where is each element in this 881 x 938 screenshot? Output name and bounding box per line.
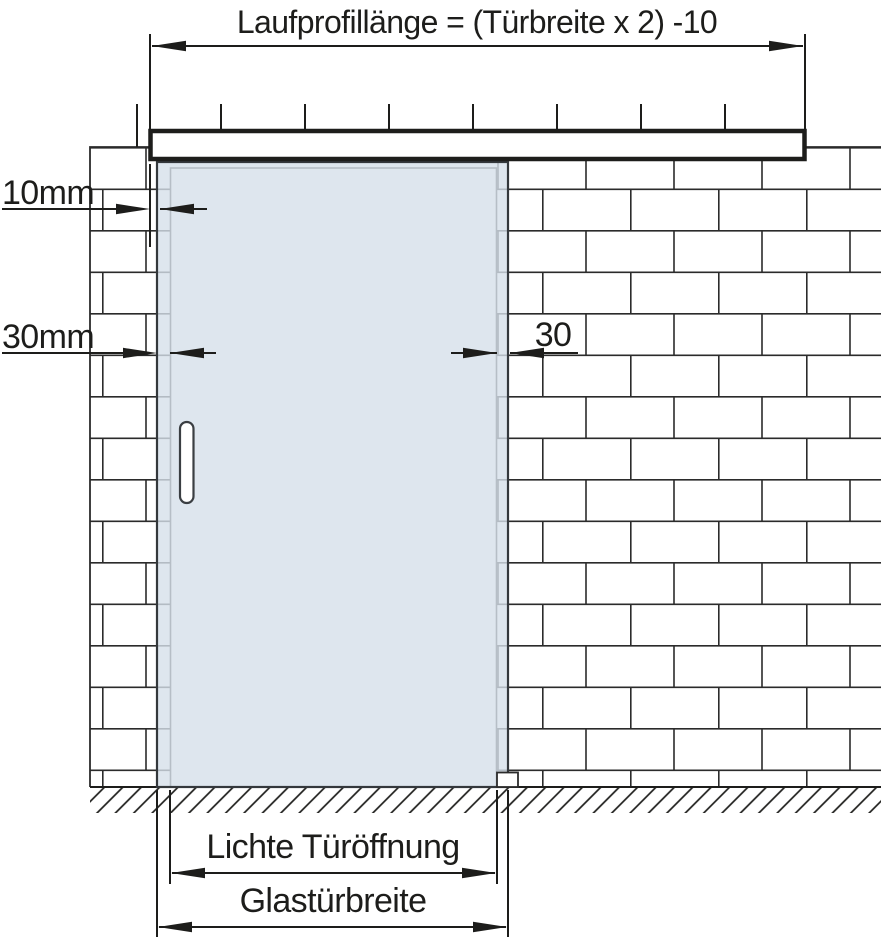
floor-hatch bbox=[90, 787, 881, 813]
overlap-30mm-label: 30mm bbox=[2, 318, 94, 356]
glass-door bbox=[157, 162, 508, 787]
track-profile bbox=[151, 131, 805, 159]
overlap-30-label: 30 bbox=[535, 316, 572, 354]
arrow-right-icon bbox=[473, 922, 507, 932]
arrow-left-icon bbox=[158, 922, 192, 932]
track-length-label: Laufprofillänge = (Türbreite x 2) -10 bbox=[237, 4, 717, 40]
wall-right bbox=[497, 147, 881, 787]
floor-guide-block bbox=[497, 773, 518, 788]
floor bbox=[90, 787, 881, 813]
dim-track-length: Laufprofillänge = (Türbreite x 2) -10 bbox=[150, 4, 805, 130]
arrow-right-icon bbox=[769, 41, 803, 51]
glass-width-label: Glastürbreite bbox=[240, 882, 427, 920]
clear-opening-label: Lichte Türöffnung bbox=[206, 828, 459, 866]
door-handle bbox=[180, 422, 194, 503]
arrow-left-icon bbox=[171, 868, 205, 878]
gap-10mm-label: 10mm bbox=[2, 174, 94, 212]
arrow-right-icon bbox=[462, 868, 496, 878]
drawing-canvas: Laufprofillänge = (Türbreite x 2) -10 10… bbox=[0, 0, 881, 938]
arrow-left-icon bbox=[152, 41, 186, 51]
sliding-door-technical-drawing: Laufprofillänge = (Türbreite x 2) -10 10… bbox=[0, 0, 881, 938]
